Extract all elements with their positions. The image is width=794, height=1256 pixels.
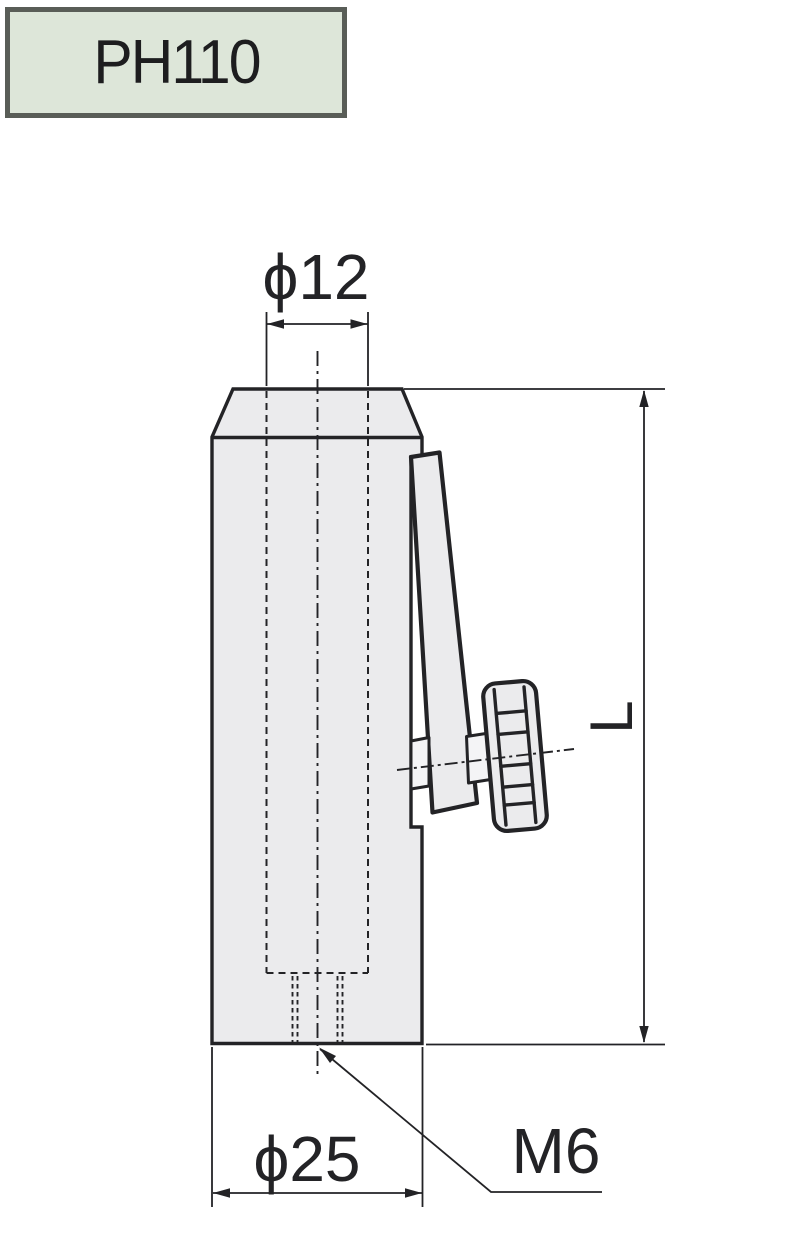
technical-drawing: ϕ12 L ϕ25 M6 [0, 0, 794, 1256]
arrowhead-top [639, 390, 648, 407]
bottom-diameter-label: ϕ25 [253, 1123, 360, 1195]
page: { "title_badge": { "label": "PH110" }, "… [0, 0, 794, 1256]
thread-callout: M6 [319, 1048, 602, 1193]
arrowhead-left [267, 319, 284, 328]
arrowhead-left [213, 1188, 230, 1197]
screw-shaft-inner [411, 738, 429, 790]
thread-label: M6 [512, 1115, 601, 1187]
length-label: L [578, 700, 645, 733]
clamp-knob [482, 680, 548, 832]
top-diameter-label: ϕ12 [262, 241, 369, 313]
knob-outline [482, 680, 548, 832]
arrowhead-bottom [639, 1026, 648, 1043]
arrowhead-right [351, 319, 368, 328]
arrowhead-right [405, 1188, 422, 1197]
dimension-top-diameter: ϕ12 [262, 241, 369, 386]
